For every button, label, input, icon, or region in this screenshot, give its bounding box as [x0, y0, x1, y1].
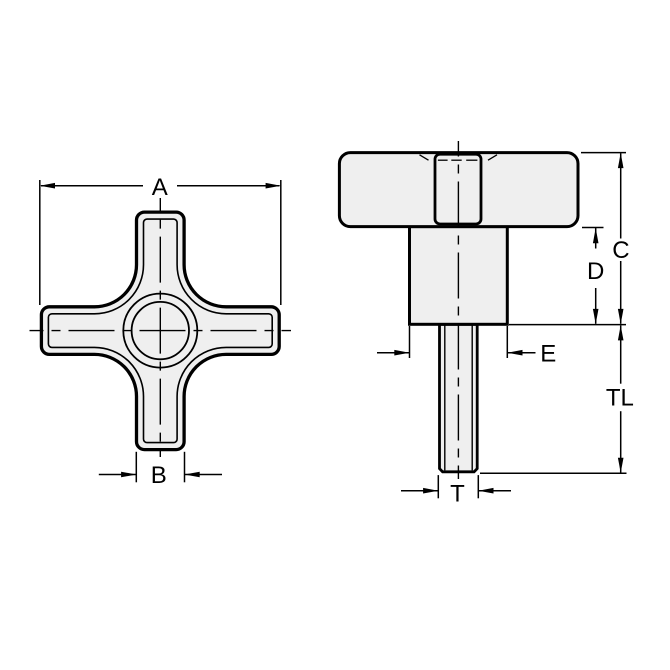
svg-text:A: A: [152, 174, 168, 201]
svg-text:E: E: [540, 340, 556, 367]
svg-text:D: D: [587, 258, 604, 285]
svg-text:B: B: [151, 462, 167, 489]
svg-text:C: C: [612, 237, 629, 264]
svg-text:T: T: [450, 480, 465, 507]
svg-text:TL: TL: [606, 385, 634, 412]
